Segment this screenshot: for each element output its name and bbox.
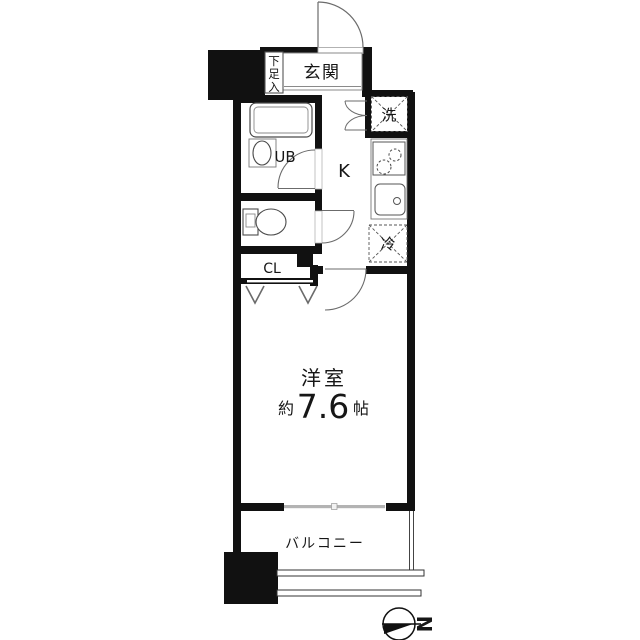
closet-folding-doors (246, 286, 317, 303)
wall-ub-kitchen-upper (315, 95, 322, 149)
unit-bath: UB (249, 103, 322, 189)
ub-doorway-jamb (315, 149, 322, 189)
toilet-door-arc (322, 211, 354, 243)
room-door-arc (325, 269, 366, 310)
entrance-door (318, 2, 363, 47)
washer-double-door (345, 101, 367, 130)
toilet-doorway-jamb (315, 211, 322, 243)
balcony-railing-top (277, 570, 424, 576)
balcony-area: バルコニー (277, 503, 424, 596)
wall-outer-right (407, 92, 415, 511)
floor-plan-drawing: 玄関 下 足 入 UB (0, 0, 640, 640)
folding-door-right (299, 286, 317, 303)
room-doorway-clear (323, 266, 366, 274)
window-pane-right (337, 505, 385, 508)
compass-north-label: N (412, 616, 436, 633)
wall-genkan-right (362, 47, 372, 97)
closet-label: CL (263, 261, 281, 277)
wall-room-top-right (366, 266, 415, 274)
kitchen-label: K (338, 161, 351, 182)
window-pane-left (284, 505, 332, 508)
compass: N (382, 608, 436, 640)
room-door (325, 269, 366, 310)
svg-text:足: 足 (268, 67, 280, 81)
wall-closet-pillar (297, 251, 313, 267)
closet-door-track (247, 280, 313, 282)
room-area-label: 約 7.6 帖 (278, 387, 369, 426)
wall-ub-top (241, 95, 322, 103)
room-area-prefix: 約 (278, 399, 294, 418)
wall-washer-bottom (365, 131, 413, 138)
washbasin (253, 141, 271, 165)
balcony-railing-bottom (277, 590, 421, 596)
folding-door-left (246, 286, 264, 303)
entrance-door-arc (318, 2, 363, 47)
room-area-value: 7.6 (297, 387, 349, 426)
svg-text:下: 下 (268, 54, 280, 68)
washer-label: 洗 (381, 106, 396, 124)
wall-block-top-left (208, 50, 265, 100)
window-center-stile (332, 504, 338, 510)
unit-bath-label: UB (274, 148, 295, 166)
wall-outer-left (233, 97, 241, 553)
bathtub (250, 103, 312, 137)
shoe-cabinet-label: 下 足 入 (268, 54, 280, 94)
wall-room-top-left (310, 266, 323, 274)
toilet-door (322, 211, 354, 244)
balcony-label: バルコニー (285, 536, 365, 552)
entrance-label: 玄関 (304, 63, 341, 83)
toilet-room (243, 209, 354, 243)
wall-pillar-bottom-left (224, 552, 278, 604)
kitchen-area: 洗 冷 K (338, 97, 407, 263)
room-area-unit: 帖 (353, 399, 369, 418)
wall-ub-bottom (238, 193, 322, 201)
refrigerator-label: 冷 (380, 235, 395, 253)
svg-text:入: 入 (268, 80, 280, 94)
western-room: 洋室 約 7.6 帖 (278, 266, 369, 426)
floor-plan: 玄関 下 足 入 UB (0, 0, 640, 640)
toilet-bowl (256, 209, 286, 235)
